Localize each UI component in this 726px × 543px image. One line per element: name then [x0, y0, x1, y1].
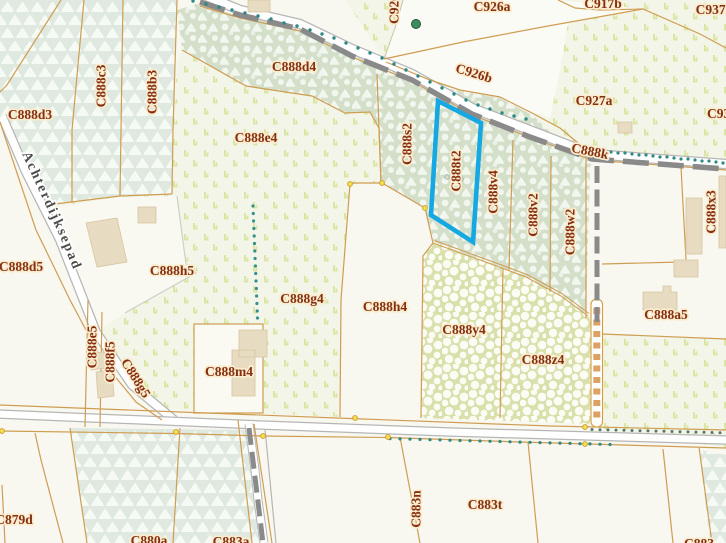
svg-text:C937a: C937a: [696, 2, 726, 17]
svg-text:C888v2: C888v2: [526, 193, 541, 237]
svg-text:C888x3: C888x3: [704, 190, 719, 234]
svg-text:C888v4: C888v4: [486, 170, 501, 214]
svg-text:C888z4: C888z4: [522, 352, 565, 367]
svg-text:C888h4: C888h4: [363, 299, 408, 314]
svg-text:C883a: C883a: [213, 534, 250, 543]
svg-text:C888w2: C888w2: [563, 209, 578, 256]
svg-text:C883t: C883t: [468, 497, 503, 512]
svg-text:C883n: C883n: [409, 490, 424, 528]
svg-text:C888a5: C888a5: [644, 307, 688, 322]
svg-text:C888b3: C888b3: [145, 70, 160, 115]
svg-text:C888h5: C888h5: [150, 263, 195, 278]
svg-text:C888t2: C888t2: [449, 150, 464, 191]
svg-text:C888s2: C888s2: [400, 123, 415, 165]
svg-text:C888d3: C888d3: [8, 107, 53, 122]
svg-text:C888c3: C888c3: [94, 64, 109, 107]
svg-text:C888e4: C888e4: [235, 130, 278, 145]
svg-text:C926: C926: [387, 0, 402, 24]
svg-text:C888f5: C888f5: [103, 341, 118, 382]
svg-text:C937: C937: [707, 106, 726, 121]
svg-text:C883: C883: [684, 536, 714, 543]
svg-text:C888d4: C888d4: [272, 59, 317, 74]
svg-text:C888g4: C888g4: [280, 291, 324, 306]
svg-text:C888m4: C888m4: [205, 364, 253, 379]
svg-text:C888d5: C888d5: [0, 259, 43, 274]
svg-text:C888y4: C888y4: [442, 322, 486, 337]
svg-text:C888e5: C888e5: [85, 325, 100, 368]
svg-text:C880a: C880a: [131, 533, 168, 543]
svg-text:C926a: C926a: [474, 0, 511, 14]
svg-text:C917b: C917b: [584, 0, 622, 11]
svg-text:C927a: C927a: [576, 93, 613, 108]
svg-text:C879d: C879d: [0, 512, 33, 527]
